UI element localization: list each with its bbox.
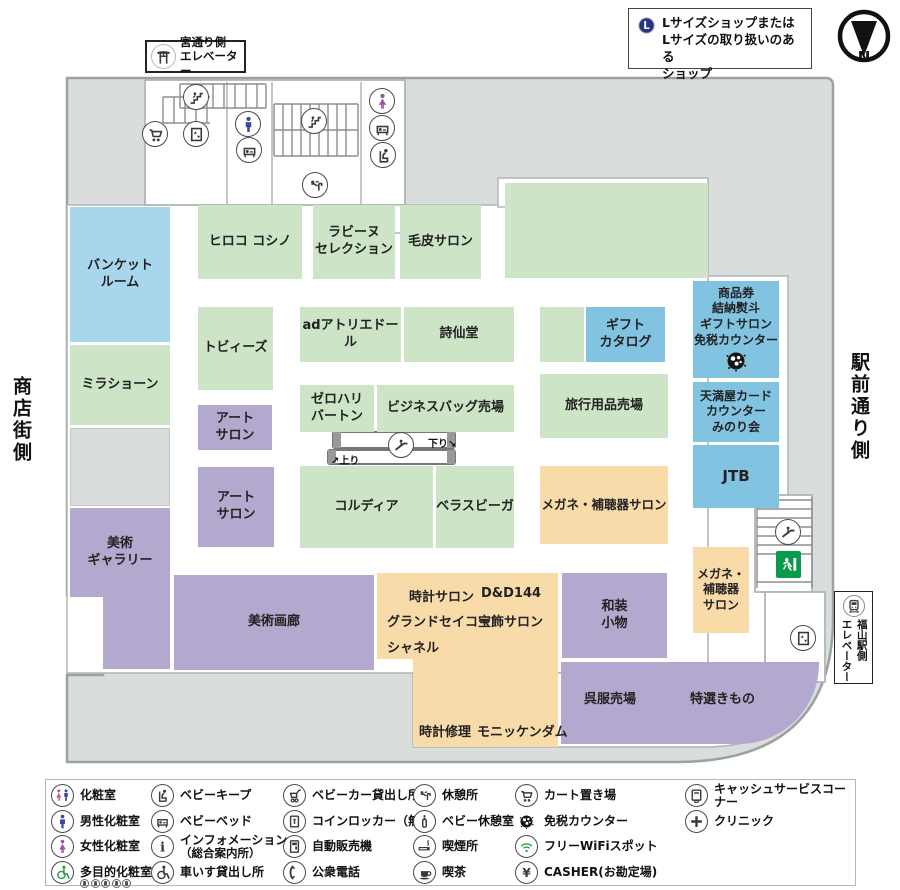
legend-item-restroom: 化粧室: [51, 783, 152, 809]
room-label: トビィーズ: [203, 340, 267, 357]
stroller-icon: [283, 784, 306, 807]
escalator-down-label: 下り↘: [428, 435, 456, 450]
legend-item-male: 男性化粧室: [51, 809, 152, 835]
fukuyama-sign-line1: 福山駅側: [856, 619, 868, 661]
legend-item-clinic: クリニック: [685, 809, 855, 835]
room-business-bag: ビジネスバッグ売場: [377, 385, 514, 432]
legend-panel: 化粧室男性化粧室女性化粧室多目的化粧室ベビーキープベビーベッドインフォメーション…: [45, 779, 856, 886]
room-label: ベラスビーガ: [436, 499, 514, 516]
legend-item-atm: キャッシュサービスコーナー: [685, 783, 855, 809]
rest-area-icon: [302, 172, 328, 198]
legend-label: 車いす貸出し所: [180, 866, 264, 879]
room-label: adアトリエドール: [300, 318, 401, 352]
yen-icon: [515, 861, 538, 884]
room-mila-schon: ミラショーン: [70, 345, 170, 425]
legend-item-smoking: 喫煙所: [413, 834, 514, 860]
label-tokei-shuri: 時計修理: [419, 721, 471, 740]
stairs-icon: [183, 84, 209, 110]
room-label: コルディア: [334, 499, 398, 516]
label-monnickendam: モニッケンダム: [477, 721, 568, 740]
elevator-icon: [790, 625, 816, 651]
male-icon: [235, 111, 261, 137]
cart-icon: [515, 784, 538, 807]
info-icon: [151, 835, 174, 858]
fukuyama-station-elevator-sign: 福山駅側 エレベーター: [834, 591, 873, 684]
escalator-up-label: ↗上り: [331, 452, 359, 467]
legend-column-6: キャッシュサービスコーナークリニック: [685, 783, 855, 834]
atm-icon: [685, 784, 708, 807]
wifi-icon: [515, 835, 538, 858]
room-label: 天満屋カード カウンター みのり会: [700, 389, 772, 436]
escalator-icon: [388, 432, 414, 458]
legend-item-baby-keep: ベビーキープ: [151, 783, 287, 809]
room-zero-halliburton: ゼロハリ バートン: [300, 385, 374, 432]
room-fur-salon: 毛皮サロン: [400, 205, 481, 279]
legend-label: クリニック: [714, 815, 774, 828]
legend-item-female: 女性化粧室: [51, 834, 152, 860]
lsize-icon: [637, 16, 656, 35]
coffee-icon: [413, 861, 436, 884]
label-tokusen-kimono: 特選きもの: [690, 688, 755, 707]
vending-icon: [283, 835, 306, 858]
legend-item-baby-rest: ベビー休憩室: [413, 809, 514, 835]
room-label: JTB: [722, 467, 749, 487]
room-art-salon-2: アート サロン: [198, 467, 274, 547]
room-jtb: JTB: [693, 445, 779, 508]
legend-label: 男性化粧室: [80, 815, 140, 828]
legend-label: 化粧室: [80, 789, 116, 802]
baby-bed-icon: [151, 810, 174, 833]
legend-label: インフォメーション（総合案内所）: [180, 834, 287, 860]
room-label: アート サロン: [216, 490, 255, 524]
baby-rest-icon: [413, 810, 436, 833]
room-bella-spiga: ベラスビーガ: [436, 466, 514, 548]
legend-item-info: インフォメーション（総合案内所）: [151, 834, 287, 860]
room-banquet-room: バンケット ルーム: [70, 207, 170, 342]
room-cordia: コルディア: [300, 466, 433, 548]
label-hoshoku-salon: 宝飾サロン: [478, 611, 543, 630]
coin-locker-icon: [283, 810, 306, 833]
room-megane-hochoki-salon-2: メガネ・ 補聴器 サロン: [693, 547, 749, 633]
room-gift-catalog: ギフト カタログ: [586, 307, 665, 362]
legend-item-cart: カート置き場: [515, 783, 658, 809]
room-bijutsu-garo: 美術画廊: [174, 575, 374, 670]
clinic-icon: [685, 810, 708, 833]
legend-label: フリーWiFiスポット: [544, 840, 658, 853]
compass-n-label: N: [858, 48, 871, 66]
legend-column-1: 化粧室男性化粧室女性化粧室多目的化粧室: [51, 783, 152, 888]
stairs-icon: [301, 108, 327, 134]
room-lapine-selection: ラビーヌ セレクション: [313, 205, 395, 279]
legend-label: CASHER(お勘定場): [544, 866, 657, 879]
compass-north: N: [836, 7, 894, 67]
room-wasou-komono: 和装 小物: [562, 573, 667, 658]
rest-area-icon: [413, 784, 436, 807]
legend-label: 自動販売機: [312, 840, 372, 853]
baby-bed-icon: [236, 137, 262, 163]
miya-dori-elevator-label: 宮通り側 エレベーター: [180, 35, 240, 78]
multipurpose-mini-icons: [80, 879, 152, 888]
room-label: ラビーヌ セレクション: [315, 225, 393, 259]
ekimae-dori-side-label: 駅前通り側: [846, 352, 873, 462]
room-tobys: トビィーズ: [198, 307, 273, 390]
legend-label: ベビーカー貸出し所: [312, 789, 420, 802]
room-label: バンケット ルーム: [87, 258, 153, 292]
room-gift-salon-duty-free: 商品券 結納熨斗 ギフトサロン 免税カウンター: [693, 281, 779, 378]
legend-label: ベビー休憩室: [442, 815, 514, 828]
female-icon: [369, 88, 395, 114]
miya-dori-elevator-sign: 宮通り側 エレベーター: [145, 40, 246, 73]
room-label: ビジネスバッグ売場: [387, 400, 504, 417]
lsize-note: Lサイズショップまたは Lサイズの取り扱いのある ショップ: [628, 8, 812, 69]
male-icon: [51, 810, 74, 833]
legend-item-duty-free: 免税カウンター: [515, 809, 658, 835]
label-gofuku-uriba: 呉服売場: [584, 688, 636, 707]
room-label: メガネ・補聴器サロン: [541, 497, 666, 513]
legend-item-yen: CASHER(お勘定場): [515, 860, 658, 886]
legend-column-4: 休憩所ベビー休憩室喫煙所喫茶: [413, 783, 514, 885]
phone-icon: [283, 861, 306, 884]
room-back-area: [70, 428, 170, 506]
room-label: 和装 小物: [601, 599, 627, 633]
female-icon: [51, 835, 74, 858]
room-megane-hochoki-salon: メガネ・補聴器サロン: [540, 466, 668, 544]
label-dd144: D&D144: [481, 586, 541, 601]
legend-label: 免税カウンター: [544, 815, 628, 828]
room-art-gallery: 美術 ギャラリー: [70, 508, 170, 597]
legend-label: 公衆電話: [312, 866, 360, 879]
train-icon: [843, 595, 865, 617]
room-label: ゼロハリ バートン: [311, 392, 363, 426]
legend-label: 女性化粧室: [80, 840, 140, 853]
legend-label: カート置き場: [544, 789, 616, 802]
room-art-gallery-ext: [103, 597, 170, 669]
legend-item-wifi: フリーWiFiスポット: [515, 834, 658, 860]
legend-column-5: カート置き場免税カウンターフリーWiFiスポットCASHER(お勘定場): [515, 783, 658, 885]
legend-item-wheelchair: 車いす貸出し所: [151, 860, 287, 886]
room-label: ヒロコ コシノ: [209, 234, 292, 251]
smoking-icon: [413, 835, 436, 858]
legend-label: 多目的化粧室: [80, 866, 152, 879]
room-label: ミラショーン: [81, 377, 158, 394]
emergency-exit-icon: [776, 551, 801, 578]
label-tokei-salon: 時計サロン: [409, 586, 474, 605]
wheelchair-green-icon: [51, 861, 74, 884]
room-hiroko-koshino: ヒロコ コシノ: [198, 205, 302, 279]
room-label: 詩仙堂: [439, 326, 478, 343]
legend-item-baby-bed: ベビーベッド: [151, 809, 287, 835]
room-travel-goods: 旅行用品売場: [540, 374, 668, 438]
duty-free-icon: [724, 349, 748, 373]
restroom-icon: [51, 784, 74, 807]
room-label: メガネ・ 補聴器 サロン: [697, 567, 745, 614]
legend-label: キャッシュサービスコーナー: [714, 783, 855, 809]
cart-icon: [142, 121, 168, 147]
elevator-icon: [183, 121, 209, 147]
label-chanel: シャネル: [387, 637, 439, 656]
legend-label: ベビーキープ: [180, 789, 251, 802]
lsize-note-text: Lサイズショップまたは Lサイズの取り扱いのある ショップ: [662, 15, 803, 83]
baby-keep-icon: [151, 784, 174, 807]
legend-item-coffee: 喫茶: [413, 860, 514, 886]
room-label: 美術 ギャラリー: [87, 536, 152, 570]
baby-bed-icon: [369, 115, 395, 141]
room-art-salon-1: アート サロン: [198, 405, 272, 450]
duty-free-icon: [515, 810, 538, 833]
room-tenmaya-card: 天満屋カード カウンター みのり会: [693, 382, 779, 442]
room-label: ギフト カタログ: [599, 318, 651, 352]
baby-keep-icon: [370, 142, 396, 168]
escalator-icon: [775, 519, 801, 545]
legend-label: 喫煙所: [442, 840, 478, 853]
room-shisendo: 詩仙堂: [404, 307, 514, 362]
room-label: 毛皮サロン: [408, 234, 473, 251]
floor-map-page: バンケット ルームミラショーン美術 ギャラリーヒロコ コシノラビーヌ セレクショ…: [0, 0, 900, 890]
room-label: 旅行用品売場: [565, 398, 643, 415]
legend-column-2: ベビーキープベビーベッドインフォメーション（総合案内所）車いす貸出し所: [151, 783, 287, 885]
fukuyama-sign-line2: エレベーター: [841, 619, 853, 682]
room-sales-area-green: [505, 183, 708, 278]
room-label: 美術画廊: [248, 614, 300, 631]
shotengai-side-label: 商店街側: [8, 376, 35, 464]
torii-icon: [151, 44, 176, 69]
room-small-green: [540, 307, 584, 362]
legend-label: 休憩所: [442, 789, 478, 802]
room-ad-atelier-dor: adアトリエドール: [300, 307, 401, 362]
legend-label: ベビーベッド: [180, 815, 252, 828]
room-label: 商品券 結納熨斗 ギフトサロン 免税カウンター: [694, 286, 778, 348]
room-label: アート サロン: [215, 411, 254, 445]
legend-label: 喫茶: [442, 866, 466, 879]
label-grand-seiko: グランドセイコー: [387, 611, 491, 630]
wheelchair-icon: [151, 861, 174, 884]
legend-item-rest-area: 休憩所: [413, 783, 514, 809]
